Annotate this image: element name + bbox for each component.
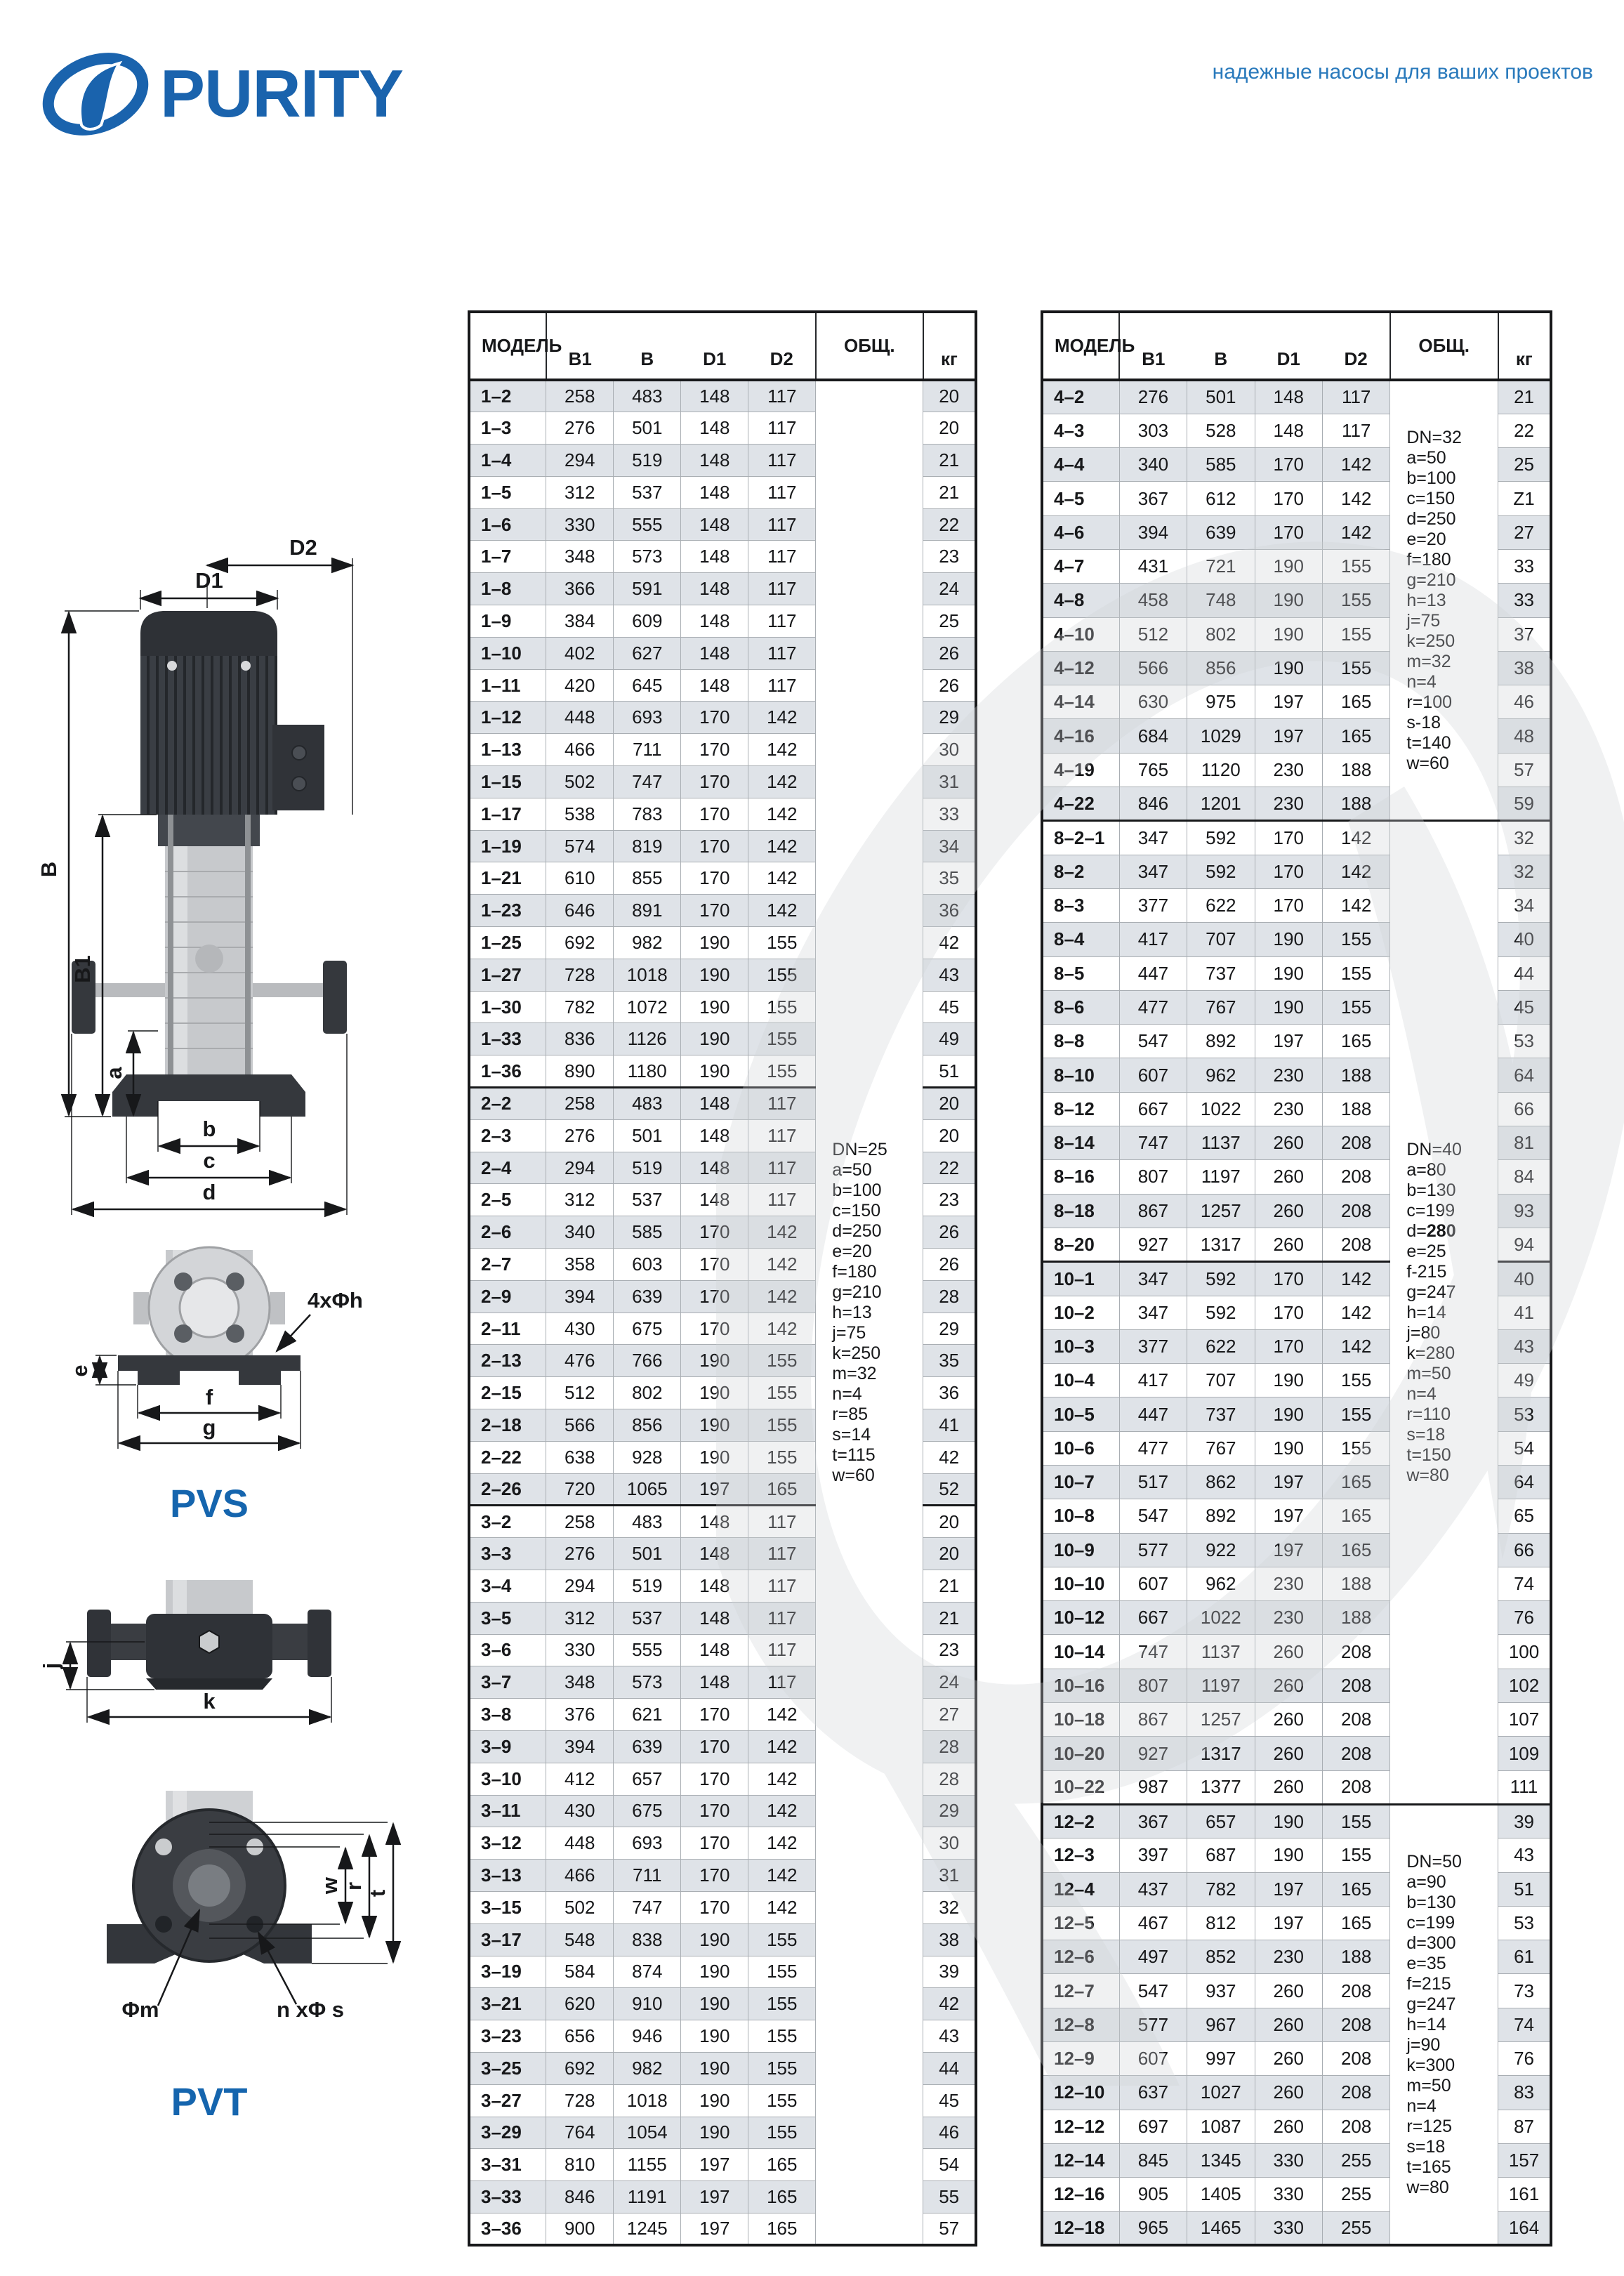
dn-info-block: DN=25a=50b=100c=150d=250e=20f=180g=210h=…	[816, 380, 923, 2245]
d1-cell: 190	[681, 1345, 748, 1377]
dn-info-line: c=199	[1406, 1201, 1497, 1221]
b-cell: 1072	[614, 991, 681, 1023]
kg-cell: 20	[923, 380, 976, 412]
d2-cell: 155	[748, 1377, 816, 1409]
b1-cell: 276	[546, 412, 614, 445]
kg-cell: 49	[923, 1023, 976, 1055]
b-cell: 555	[614, 1634, 681, 1666]
b1-cell: 330	[546, 508, 614, 541]
b-cell: 528	[1187, 414, 1255, 447]
d2-cell: 165	[748, 2181, 816, 2213]
model-cell: 3–27	[469, 2084, 546, 2117]
model-cell: 12–5	[1042, 1906, 1119, 1940]
b-cell: 946	[614, 2020, 681, 2053]
dn-info-block: DN=40a=80b=130c=199d=280e=25f-215g=247h=…	[1390, 821, 1498, 1805]
b1-cell: 312	[546, 476, 614, 508]
dn-info-line: d=300	[1406, 1933, 1497, 1954]
d2-cell: 155	[748, 1956, 816, 1988]
d2-cell: 208	[1322, 1126, 1389, 1160]
kg-cell: 42	[923, 927, 976, 959]
model-cell: 10–3	[1042, 1329, 1119, 1363]
kg-cell: 32	[1498, 821, 1551, 855]
model-cell: 12–8	[1042, 2008, 1119, 2041]
dn-info-line: n=4	[1406, 672, 1497, 692]
b-cell: 1180	[614, 1055, 681, 1088]
model-cell: 1–23	[469, 895, 546, 927]
b-cell: 609	[614, 605, 681, 638]
d1-cell: 190	[1255, 1364, 1322, 1397]
b-cell: 802	[614, 1377, 681, 1409]
dim-label-e: e	[67, 1364, 92, 1376]
d2-cell: 117	[748, 605, 816, 638]
d2-cell: 117	[748, 380, 816, 412]
kg-cell: 36	[923, 895, 976, 927]
d1-cell: 148	[681, 637, 748, 669]
dim-label-holes: 4xΦh	[308, 1288, 363, 1313]
b-cell: 982	[614, 2052, 681, 2084]
b1-cell: 584	[546, 1956, 614, 1988]
kg-cell: 45	[923, 2084, 976, 2117]
kg-cell: 30	[923, 734, 976, 766]
pvs-label: PVS	[170, 1481, 249, 1525]
d2-cell: 165	[748, 2149, 816, 2181]
dim-label-j: j	[39, 1663, 63, 1670]
kg-cell: 24	[923, 573, 976, 605]
kg-cell: 76	[1498, 1601, 1551, 1635]
model-cell: 3–23	[469, 2020, 546, 2053]
kg-cell: 21	[923, 1602, 976, 1634]
d1-cell: 170	[681, 1730, 748, 1763]
b-cell: 928	[614, 1441, 681, 1473]
b1-cell: 467	[1119, 1906, 1187, 1940]
model-cell: 1–21	[469, 862, 546, 895]
d1-cell: 170	[681, 702, 748, 734]
d1-cell: 197	[1255, 1466, 1322, 1499]
d1-cell: 190	[681, 2052, 748, 2084]
b1-cell: 394	[546, 1280, 614, 1313]
model-cell: 8–14	[1042, 1126, 1119, 1160]
model-cell: 4–7	[1042, 549, 1119, 583]
column-header-d1: D1	[1255, 312, 1322, 380]
kg-cell: 66	[1498, 1092, 1551, 1126]
b-cell: 621	[614, 1699, 681, 1731]
pump-drawings: D2 D1 B B1 a b c d	[28, 421, 463, 2142]
b1-cell: 747	[1119, 1635, 1187, 1669]
d1-cell: 190	[681, 1923, 748, 1956]
dimensions-table-right-wrap: МОДЕЛЬB1BD1D2ОБЩ.кг4–2276501148117DN=32a…	[1041, 310, 1552, 2247]
kg-cell: 21	[1498, 380, 1551, 414]
model-cell: 2–2	[469, 1088, 546, 1120]
table-row: 8–2–1347592170142DN=40a=80b=130c=199d=28…	[1042, 821, 1551, 855]
dn-info-line: h=14	[1406, 2015, 1497, 2035]
kg-cell: 57	[1498, 753, 1551, 787]
d1-cell: 170	[1255, 448, 1322, 482]
b1-cell: 728	[546, 959, 614, 991]
dn-info-line: DN=40	[1406, 1140, 1497, 1160]
dn-info-line: g=247	[1406, 1282, 1497, 1303]
d1-cell: 330	[1255, 2143, 1322, 2177]
kg-cell: 20	[923, 1538, 976, 1570]
dimensions-table-left-wrap: МОДЕЛЬB1BD1D2ОБЩ.кг1–2258483148117DN=25a…	[468, 310, 977, 2247]
brand-logo-text: PURITY	[160, 60, 403, 128]
d1-cell: 170	[1255, 515, 1322, 549]
b1-cell: 630	[1119, 685, 1187, 719]
b1-cell: 607	[1119, 2042, 1187, 2076]
b-cell: 1191	[614, 2181, 681, 2213]
d1-cell: 190	[1255, 1397, 1322, 1431]
dn-info-line: r=85	[832, 1405, 922, 1425]
d2-cell: 142	[748, 798, 816, 830]
d1-cell: 148	[681, 1570, 748, 1602]
kg-cell: 23	[923, 1634, 976, 1666]
d2-cell: 165	[748, 2213, 816, 2245]
dn-info-line: t=150	[1406, 1445, 1497, 1466]
kg-cell: 25	[1498, 448, 1551, 482]
model-cell: 10–7	[1042, 1466, 1119, 1499]
d1-cell: 260	[1255, 1126, 1322, 1160]
d2-cell: 117	[748, 508, 816, 541]
d1-cell: 170	[681, 1699, 748, 1731]
d1-cell: 170	[1255, 1262, 1322, 1296]
kg-cell: 43	[923, 959, 976, 991]
kg-cell: 107	[1498, 1703, 1551, 1737]
model-cell: 2–15	[469, 1377, 546, 1409]
model-cell: 10–22	[1042, 1770, 1119, 1804]
b-cell: 962	[1187, 1567, 1255, 1600]
d1-cell: 190	[681, 1023, 748, 1055]
d1-cell: 190	[1255, 584, 1322, 617]
model-cell: 1–25	[469, 927, 546, 959]
model-cell: 1–36	[469, 1055, 546, 1088]
kg-cell: 26	[923, 1249, 976, 1281]
d2-cell: 142	[748, 1730, 816, 1763]
b-cell: 1245	[614, 2213, 681, 2245]
b1-cell: 512	[546, 1377, 614, 1409]
kg-cell: 33	[1498, 584, 1551, 617]
d2-cell: 188	[1322, 1092, 1389, 1126]
d1-cell: 190	[681, 1441, 748, 1473]
kg-cell: 81	[1498, 1126, 1551, 1160]
model-cell: 4–22	[1042, 787, 1119, 821]
kg-cell: 35	[923, 862, 976, 895]
model-cell: 3–9	[469, 1730, 546, 1763]
kg-cell: 55	[923, 2181, 976, 2213]
b-cell: 585	[1187, 448, 1255, 482]
b1-cell: 303	[1119, 414, 1187, 447]
kg-cell: 46	[923, 2117, 976, 2149]
d2-cell: 117	[748, 1538, 816, 1570]
b-cell: 585	[614, 1216, 681, 1249]
model-cell: 12–4	[1042, 1872, 1119, 1906]
dn-info-line: n=4	[832, 1384, 922, 1405]
kg-cell: 28	[923, 1280, 976, 1313]
dn-info-line: c=150	[832, 1201, 922, 1221]
b-cell: 573	[614, 1666, 681, 1699]
d2-cell: 188	[1322, 1940, 1389, 1974]
d1-cell: 197	[1255, 1025, 1322, 1058]
d1-cell: 230	[1255, 753, 1322, 787]
d1-cell: 190	[1255, 1838, 1322, 1872]
dim-label-a: a	[102, 1067, 126, 1079]
d2-cell: 117	[748, 1666, 816, 1699]
b1-cell: 340	[1119, 448, 1187, 482]
model-cell: 10–4	[1042, 1364, 1119, 1397]
d1-cell: 197	[681, 1473, 748, 1506]
b-cell: 622	[1187, 888, 1255, 922]
b-cell: 737	[1187, 1397, 1255, 1431]
b1-cell: 656	[546, 2020, 614, 2053]
dn-info-line: g=210	[1406, 570, 1497, 591]
b1-cell: 607	[1119, 1058, 1187, 1092]
b-cell: 819	[614, 830, 681, 862]
b1-cell: 987	[1119, 1770, 1187, 1804]
d2-cell: 117	[748, 1088, 816, 1120]
b1-cell: 502	[546, 1891, 614, 1923]
pvt-inline-view: j k	[39, 1580, 331, 1723]
d1-cell: 148	[681, 1602, 748, 1634]
b1-cell: 547	[1119, 1025, 1187, 1058]
b1-cell: 448	[546, 1827, 614, 1860]
d2-cell: 155	[748, 1023, 816, 1055]
d1-cell: 260	[1255, 1228, 1322, 1261]
d2-cell: 117	[748, 445, 816, 477]
model-cell: 1–3	[469, 412, 546, 445]
d1-cell: 190	[681, 1055, 748, 1088]
d2-cell: 188	[1322, 1058, 1389, 1092]
model-cell: 2–3	[469, 1119, 546, 1152]
kg-cell: 29	[923, 1795, 976, 1827]
d1-cell: 190	[681, 2117, 748, 2149]
kg-cell: 43	[1498, 1838, 1551, 1872]
column-header-kg: кг	[923, 312, 976, 380]
dn-info-line: m=50	[1406, 2076, 1497, 2096]
b-cell: 1317	[1187, 1228, 1255, 1261]
d1-cell: 197	[681, 2213, 748, 2245]
dn-info-line: r=125	[1406, 2117, 1497, 2137]
d2-cell: 208	[1322, 2110, 1389, 2143]
model-cell: 4–5	[1042, 482, 1119, 515]
kg-cell: 28	[923, 1730, 976, 1763]
d2-cell: 117	[1322, 414, 1389, 447]
b1-cell: 765	[1119, 753, 1187, 787]
dimensions-table-left: МОДЕЛЬB1BD1D2ОБЩ.кг1–2258483148117DN=25a…	[468, 310, 977, 2247]
kg-cell: 53	[1498, 1025, 1551, 1058]
model-cell: 10–8	[1042, 1499, 1119, 1533]
dim-label-phi-m: Φm	[121, 1997, 159, 2022]
model-cell: 10–2	[1042, 1296, 1119, 1329]
b-cell: 1027	[1187, 2076, 1255, 2110]
kg-cell: 44	[923, 2052, 976, 2084]
d2-cell: 142	[1322, 515, 1389, 549]
d2-cell: 208	[1322, 1160, 1389, 1194]
d1-cell: 190	[681, 1956, 748, 1988]
kg-cell: 45	[1498, 990, 1551, 1024]
dn-info-line: j=90	[1406, 2035, 1497, 2055]
model-cell: 2–18	[469, 1409, 546, 1442]
d1-cell: 170	[1255, 821, 1322, 855]
kg-cell: 42	[923, 1441, 976, 1473]
model-cell: 8–3	[1042, 888, 1119, 922]
model-cell: 8–16	[1042, 1160, 1119, 1194]
kg-cell: 53	[1498, 1906, 1551, 1940]
b-cell: 1018	[614, 2084, 681, 2117]
kg-cell: 83	[1498, 2076, 1551, 2110]
d2-cell: 142	[748, 734, 816, 766]
model-cell: 3–31	[469, 2149, 546, 2181]
d1-cell: 148	[681, 669, 748, 702]
b-cell: 855	[614, 862, 681, 895]
b1-cell: 340	[546, 1216, 614, 1249]
b1-cell: 430	[546, 1795, 614, 1827]
b-cell: 501	[614, 1538, 681, 1570]
kg-cell: 164	[1498, 2211, 1551, 2245]
b-cell: 1054	[614, 2117, 681, 2149]
d2-cell: 165	[1322, 685, 1389, 719]
b-cell: 856	[1187, 651, 1255, 685]
model-cell: 10–14	[1042, 1635, 1119, 1669]
d2-cell: 117	[748, 476, 816, 508]
brand-logo-icon	[41, 52, 160, 136]
d2-cell: 142	[748, 1699, 816, 1731]
column-header-d2: D2	[748, 312, 816, 380]
d2-cell: 165	[748, 1473, 816, 1506]
d1-cell: 230	[1255, 1567, 1322, 1600]
d2-cell: 165	[1322, 1533, 1389, 1567]
d1-cell: 170	[681, 1891, 748, 1923]
d1-cell: 148	[681, 1634, 748, 1666]
b-cell: 1137	[1187, 1635, 1255, 1669]
b-cell: 519	[614, 1152, 681, 1184]
b1-cell: 548	[546, 1923, 614, 1956]
b1-cell: 538	[546, 798, 614, 830]
b-cell: 1087	[1187, 2110, 1255, 2143]
b1-cell: 684	[1119, 719, 1187, 753]
d2-cell: 155	[1322, 549, 1389, 583]
dn-info-line: DN=32	[1406, 428, 1497, 448]
kg-cell: 76	[1498, 2042, 1551, 2076]
d1-cell: 170	[681, 1249, 748, 1281]
d1-cell: 197	[1255, 1906, 1322, 1940]
column-header-model: МОДЕЛЬ	[469, 312, 546, 380]
b-cell: 997	[1187, 2042, 1255, 2076]
dn-info-line: k=300	[1406, 2055, 1497, 2076]
b1-cell: 447	[1119, 956, 1187, 990]
d2-cell: 155	[1322, 584, 1389, 617]
d1-cell: 190	[1255, 1431, 1322, 1465]
b-cell: 937	[1187, 1974, 1255, 2008]
d1-cell: 230	[1255, 1092, 1322, 1126]
b-cell: 1065	[614, 1473, 681, 1506]
b1-cell: 294	[546, 445, 614, 477]
b-cell: 501	[614, 412, 681, 445]
dn-info-line: a=90	[1406, 1872, 1497, 1893]
d2-cell: 165	[1322, 1906, 1389, 1940]
d2-cell: 165	[1322, 1025, 1389, 1058]
d2-cell: 142	[748, 1860, 816, 1892]
dn-info-line: t=115	[832, 1445, 922, 1466]
b-cell: 1405	[1187, 2178, 1255, 2211]
b1-cell: 764	[546, 2117, 614, 2149]
model-cell: 3–15	[469, 1891, 546, 1923]
dim-label-w: w	[317, 1876, 342, 1895]
model-cell: 3–13	[469, 1860, 546, 1892]
d1-cell: 190	[681, 1409, 748, 1442]
dn-info-line: a=80	[1406, 1160, 1497, 1180]
d1-cell: 190	[1255, 923, 1322, 956]
b-cell: 812	[1187, 1906, 1255, 1940]
d1-cell: 170	[681, 895, 748, 927]
b-cell: 711	[614, 1860, 681, 1892]
b-cell: 639	[1187, 515, 1255, 549]
kg-cell: 33	[923, 798, 976, 830]
d2-cell: 155	[1322, 1431, 1389, 1465]
model-cell: 8–8	[1042, 1025, 1119, 1058]
model-cell: 3–21	[469, 1988, 546, 2020]
kg-cell: 20	[923, 1119, 976, 1152]
dn-info-line: DN=50	[1406, 1852, 1497, 1872]
table-row: 12–2367657190155DN=50a=90b=130c=199d=300…	[1042, 1804, 1551, 1838]
d1-cell: 330	[1255, 2211, 1322, 2245]
kg-cell: 22	[1498, 414, 1551, 447]
model-cell: 8–18	[1042, 1194, 1119, 1228]
dn-info-line: d=280	[1406, 1221, 1497, 1242]
kg-cell: 48	[1498, 719, 1551, 753]
dimensions-table-right: МОДЕЛЬB1BD1D2ОБЩ.кг4–2276501148117DN=32a…	[1041, 310, 1552, 2247]
dim-label-d1: D1	[195, 568, 223, 593]
model-cell: 12–3	[1042, 1838, 1119, 1872]
b-cell: 1197	[1187, 1160, 1255, 1194]
b-cell: 627	[614, 637, 681, 669]
b1-cell: 845	[1119, 2143, 1187, 2177]
model-cell: 12–16	[1042, 2178, 1119, 2211]
b1-cell: 577	[1119, 1533, 1187, 1567]
kg-cell: 100	[1498, 1635, 1551, 1669]
dim-label-n-phi-s: n xΦ s	[277, 1997, 344, 2022]
b-cell: 537	[614, 1184, 681, 1216]
dim-label-b: b	[203, 1117, 216, 1141]
dn-info-line: k=250	[1406, 631, 1497, 652]
dn-info-line: j=75	[1406, 611, 1497, 631]
b-cell: 922	[1187, 1533, 1255, 1567]
d1-cell: 148	[681, 476, 748, 508]
b1-cell: 412	[546, 1763, 614, 1795]
d1-cell: 170	[681, 1763, 748, 1795]
dn-info-line: m=50	[1406, 1364, 1497, 1384]
d2-cell: 142	[748, 1216, 816, 1249]
d1-cell: 230	[1255, 1058, 1322, 1092]
d2-cell: 208	[1322, 2076, 1389, 2110]
b1-cell: 347	[1119, 821, 1187, 855]
kg-cell: 41	[923, 1409, 976, 1442]
b1-cell: 348	[546, 1666, 614, 1699]
kg-cell: 51	[1498, 1872, 1551, 1906]
b1-cell: 512	[1119, 617, 1187, 651]
kg-cell: 38	[1498, 651, 1551, 685]
kg-cell: 74	[1498, 2008, 1551, 2041]
b1-cell: 367	[1119, 482, 1187, 515]
dn-info-line: a=50	[1406, 448, 1497, 468]
d2-cell: 208	[1322, 2008, 1389, 2041]
kg-cell: 39	[1498, 1804, 1551, 1838]
dn-info-line: e=20	[1406, 529, 1497, 550]
model-cell: 8–5	[1042, 956, 1119, 990]
b-cell: 612	[1187, 482, 1255, 515]
dim-label-t: t	[365, 1890, 390, 1897]
b1-cell: 312	[546, 1184, 614, 1216]
model-cell: 12–6	[1042, 1940, 1119, 1974]
b1-cell: 692	[546, 927, 614, 959]
b1-cell: 692	[546, 2052, 614, 2084]
